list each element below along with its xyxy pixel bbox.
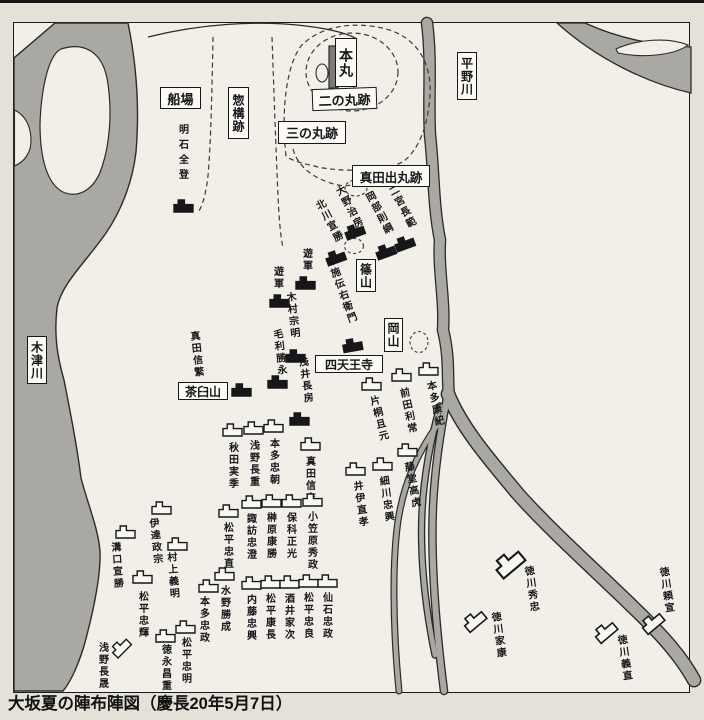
place-label-honmaru: 本丸 [335, 38, 357, 87]
place-label-shitennoji: 四天王寺 [315, 355, 383, 373]
place-label-ninomaru-ato: 二の丸跡 [312, 87, 378, 111]
place-label-sasayama: 篠山 [356, 259, 376, 292]
place-label-sanada-demaru-ato: 真田出丸跡 [352, 165, 430, 187]
place-label-okayama: 岡山 [384, 318, 403, 352]
place-label-senba: 船場 [160, 87, 201, 109]
place-label-kizu-river: 木津川 [27, 336, 47, 384]
place-label-sannomaru-ato: 三の丸跡 [278, 121, 346, 144]
place-label-sogamae-ato: 惣構跡 [228, 87, 249, 139]
scanned-battle-map-page: 明石全登大野治房北川宣勝岡部則綱二宮長範布施伝右衛門遊軍遊軍木村宗明毛利勝永浅井… [0, 0, 704, 720]
place-label-chausuyama: 茶臼山 [178, 382, 228, 400]
place-label-hirano-river: 平野川 [457, 52, 477, 100]
map-caption: 大坂夏の陣布陣図（慶長20年5月7日） [8, 695, 292, 715]
place-labels-layer: 船場惣構跡本丸二の丸跡三の丸跡真田出丸跡平野川木津川篠山岡山四天王寺茶臼山 [0, 0, 704, 720]
